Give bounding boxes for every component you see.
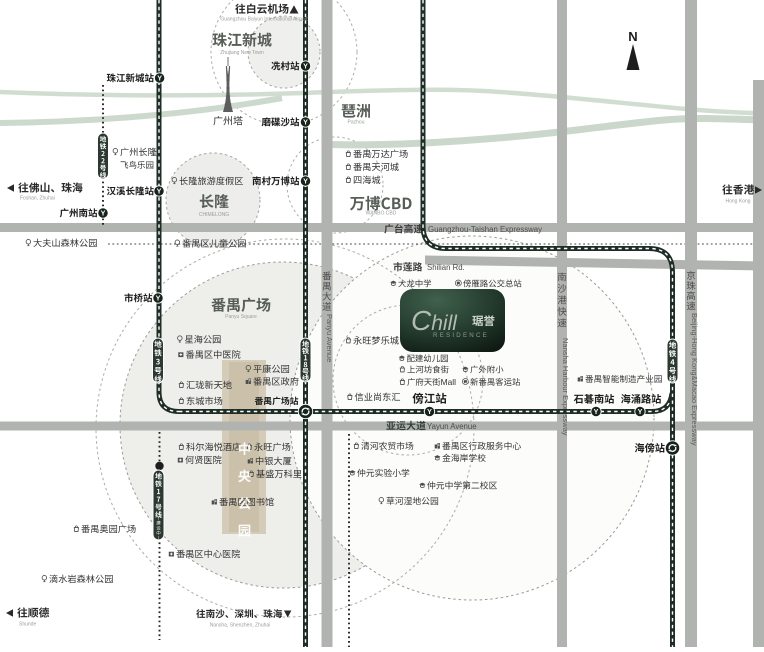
svg-text:Yayun Avenue: Yayun Avenue bbox=[427, 422, 477, 431]
svg-text:Beijing-Hong Kong&Macao Expres: Beijing-Hong Kong&Macao Expressway bbox=[690, 313, 699, 446]
svg-text:Y: Y bbox=[157, 74, 162, 83]
svg-text:Y: Y bbox=[303, 62, 308, 71]
svg-text:Y: Y bbox=[101, 209, 106, 218]
svg-text:CHIMELONG: CHIMELONG bbox=[199, 212, 229, 218]
svg-text:Pazhou: Pazhou bbox=[348, 120, 365, 126]
svg-text:Y: Y bbox=[157, 187, 162, 196]
svg-text:Guangzhou-Taishan Expressway: Guangzhou-Taishan Expressway bbox=[428, 225, 542, 234]
svg-text:Panyu Avenue: Panyu Avenue bbox=[325, 314, 334, 362]
svg-text:Zhujiang New Town: Zhujiang New Town bbox=[220, 50, 264, 56]
svg-text:WANBO CBD: WANBO CBD bbox=[366, 211, 397, 217]
svg-text:Hong Kong: Hong Kong bbox=[725, 199, 750, 205]
svg-text:Y: Y bbox=[594, 407, 599, 416]
svg-text:Guangzhou Baiyun International: Guangzhou Baiyun International Airport bbox=[220, 17, 308, 23]
svg-text:Y: Y bbox=[427, 407, 432, 416]
svg-text:Y: Y bbox=[638, 407, 643, 416]
svg-text:Y: Y bbox=[303, 118, 308, 127]
svg-text:Panyu Square: Panyu Square bbox=[225, 314, 257, 320]
svg-text:N: N bbox=[628, 29, 637, 44]
svg-text:Y: Y bbox=[156, 294, 161, 303]
svg-text:Y: Y bbox=[303, 177, 308, 186]
svg-text:Shunde: Shunde bbox=[19, 622, 36, 628]
svg-text:Shilian Rd.: Shilian Rd. bbox=[427, 263, 465, 272]
svg-text:Mall: Mall bbox=[441, 377, 456, 387]
svg-text:Nansha Harbour Expressway: Nansha Harbour Expressway bbox=[561, 338, 570, 436]
svg-text:Foshan, Zhuhai: Foshan, Zhuhai bbox=[20, 196, 55, 202]
svg-text:RESIDENCE: RESIDENCE bbox=[433, 332, 489, 339]
svg-text:Nansha, Shenzhen, Zhuhai: Nansha, Shenzhen, Zhuhai bbox=[210, 623, 271, 629]
